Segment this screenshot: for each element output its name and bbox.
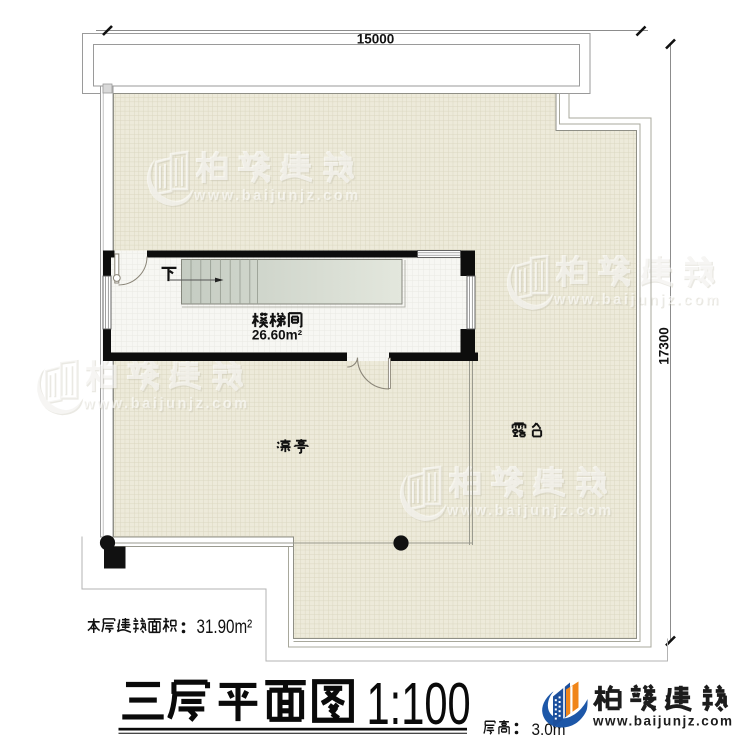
svg-text:26.60m²: 26.60m² (252, 328, 303, 343)
svg-text:1:100: 1:100 (367, 671, 471, 737)
svg-text:www.baijunjz.com: www.baijunjz.com (592, 714, 734, 729)
svg-text:17300: 17300 (657, 327, 672, 365)
svg-text:31.90m²: 31.90m² (197, 615, 253, 637)
svg-text:15000: 15000 (357, 32, 395, 47)
